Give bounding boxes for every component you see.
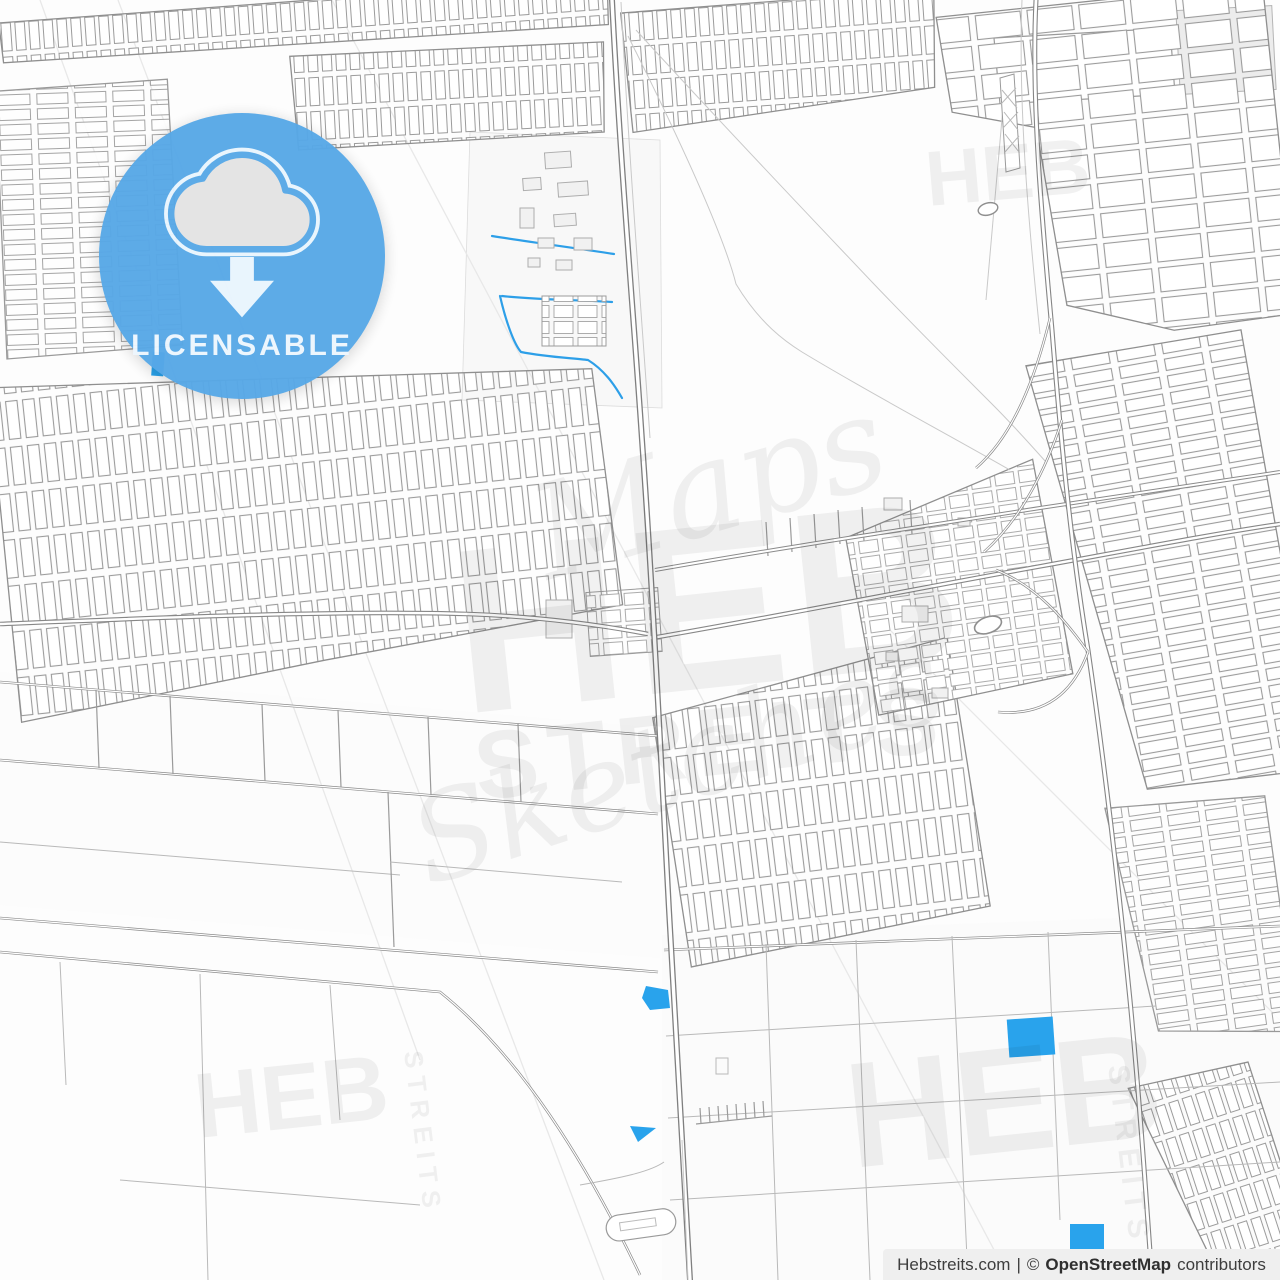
licensable-badge[interactable]: LICENSABLE [99, 113, 385, 399]
divider: | [1016, 1255, 1020, 1275]
osm-link[interactable]: OpenStreetMap [1045, 1255, 1171, 1275]
watermark-heb-bottomleft: HEB [189, 1036, 393, 1158]
download-arrow-icon [186, 257, 298, 321]
copyright-symbol: © [1027, 1255, 1040, 1275]
badge-label: LICENSABLE [131, 329, 353, 363]
watermark-heb-topright: HEB [922, 121, 1094, 223]
cloud-icon [159, 137, 325, 261]
attribution-bar: Hebstreits.com | © OpenStreetMap contrib… [883, 1249, 1280, 1280]
site-link[interactable]: Hebstreits.com [897, 1255, 1010, 1275]
watermark-streits-bottomleft-vertical: STREITS [398, 1049, 448, 1217]
map-preview: Maps HEB STREITS Sketches HEB HEB STREIT… [0, 0, 1280, 1280]
attribution-suffix: contributors [1177, 1255, 1266, 1275]
